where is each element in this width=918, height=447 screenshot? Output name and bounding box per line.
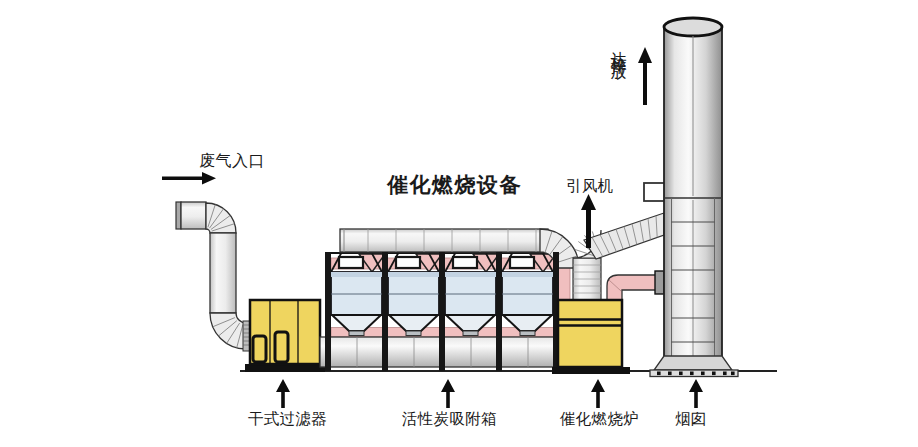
dry-filter-unit [245, 300, 325, 372]
label-chimney: 烟囱 [675, 410, 707, 427]
label-induced-draft-fan: 引风机 [566, 177, 613, 194]
furnace-outlet-pipe [607, 271, 664, 300]
label-catalytic-furnace: 催化燃烧炉 [560, 410, 639, 427]
chimney-bracket [644, 183, 665, 201]
carbon-adsorption-unit [320, 229, 579, 371]
diagram-canvas [0, 0, 918, 447]
label-waste-gas-inlet: 废气入口 [199, 152, 265, 170]
chimney-pointer-arrow [689, 379, 703, 408]
adsorption-module [388, 254, 442, 336]
diagonal-duct [584, 213, 664, 259]
emission-arrow [638, 47, 652, 105]
carbon-box-pointer-arrow [441, 379, 455, 408]
label-dry-filter: 干式过滤器 [248, 410, 327, 427]
inlet-arrow [162, 172, 216, 185]
chimney-flange [655, 271, 664, 294]
furnace-pointer-arrow [591, 379, 605, 408]
dry-filter-pointer-arrow [276, 379, 290, 408]
label-carbon-adsorption-box: 活性炭吸附箱 [402, 410, 497, 427]
adsorption-module [502, 254, 556, 336]
page-title: 催化燃烧设备 [387, 174, 522, 197]
filter-door [275, 332, 288, 362]
adsorption-module [445, 254, 499, 336]
chimney-stack [644, 18, 738, 377]
bottom-duct [320, 337, 556, 367]
chimney-skirt [654, 356, 732, 370]
catalytic-furnace-unit [552, 300, 630, 374]
label-compliant-emission: 达标排放 [610, 38, 628, 54]
adsorption-module [331, 254, 385, 336]
inlet-duct [176, 202, 252, 351]
filter-door [253, 336, 266, 362]
process-flow-diagram: 催化燃烧设备 废气入口 引风机 达标排放 干式过滤器 活性炭吸附箱 催化燃烧炉 … [0, 0, 918, 447]
